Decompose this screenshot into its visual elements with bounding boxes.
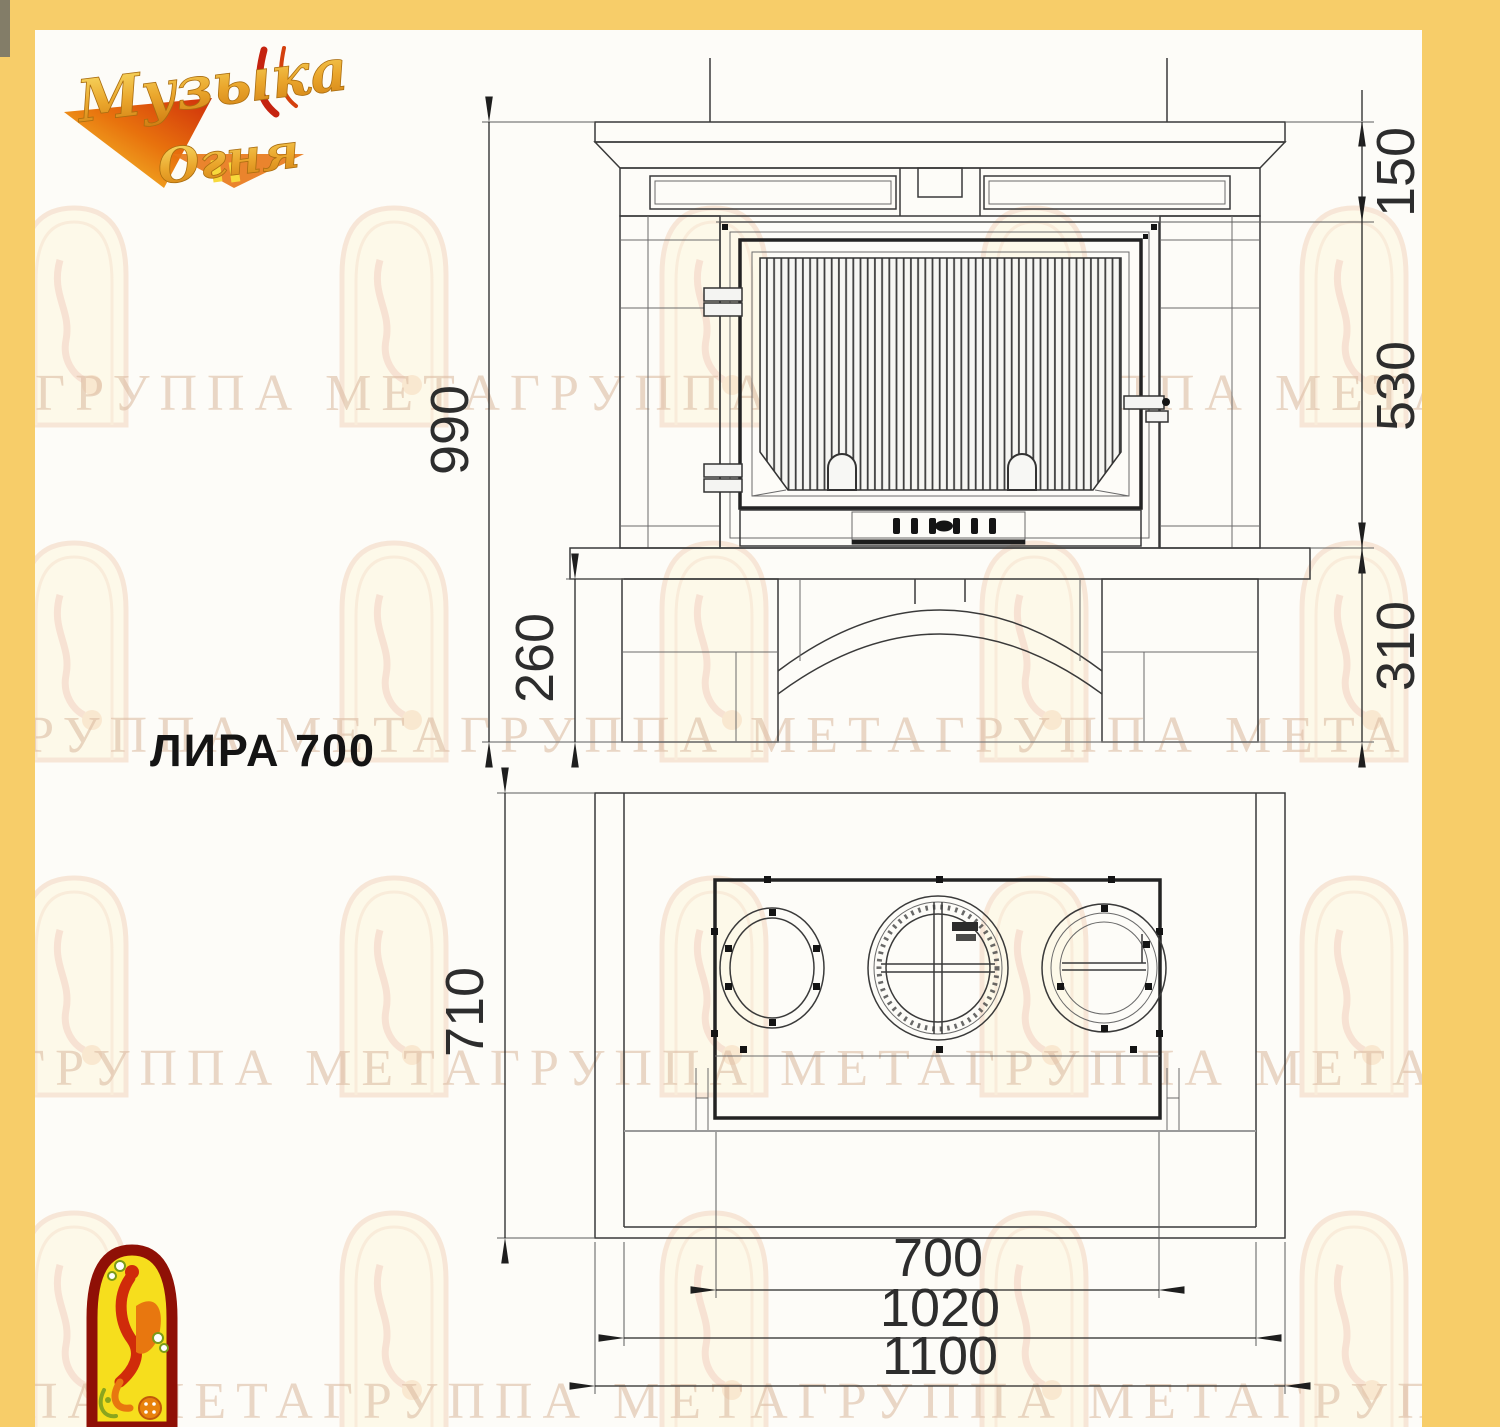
dim-plinth-height-label: 260 [505, 613, 565, 703]
watermark-text-row: ГРУППА МЕТАГРУППА МЕТАГРУППА МЕТА [15, 1040, 1440, 1097]
watermark-text-row: ПА МЕТАГРУППА МЕТАГРУППА МЕТАГРУППА [20, 1373, 1500, 1427]
dim-base-height-label: 310 [1366, 601, 1426, 691]
sun-icon [139, 1397, 161, 1419]
maker-stamp [952, 922, 978, 931]
model-label: ЛИРА 700 [150, 725, 376, 776]
scanned-spec-sheet: ГРУППА МЕТАГРУППА МЕТАГРУППА МЕТА ГРУППА… [0, 0, 1500, 1427]
dim-overall-width-label: 1100 [882, 1326, 998, 1386]
document-canvas: ГРУППА МЕТАГРУППА МЕТАГРУППА МЕТА ГРУППА… [0, 0, 1500, 1427]
watermark-text-row: ГРУППА МЕТАГРУППА МЕТАГРУППА МЕТА [35, 365, 1460, 422]
dim-firebox-height-label: 530 [1366, 341, 1426, 431]
firebird-arch-logo [92, 1250, 172, 1427]
firebox-grill [760, 258, 1121, 490]
dim-depth-label: 710 [435, 967, 495, 1057]
dim-mantel-height-label: 150 [1366, 127, 1426, 217]
scan-artifact [0, 0, 10, 57]
dim-total-height-label: 990 [420, 385, 480, 475]
